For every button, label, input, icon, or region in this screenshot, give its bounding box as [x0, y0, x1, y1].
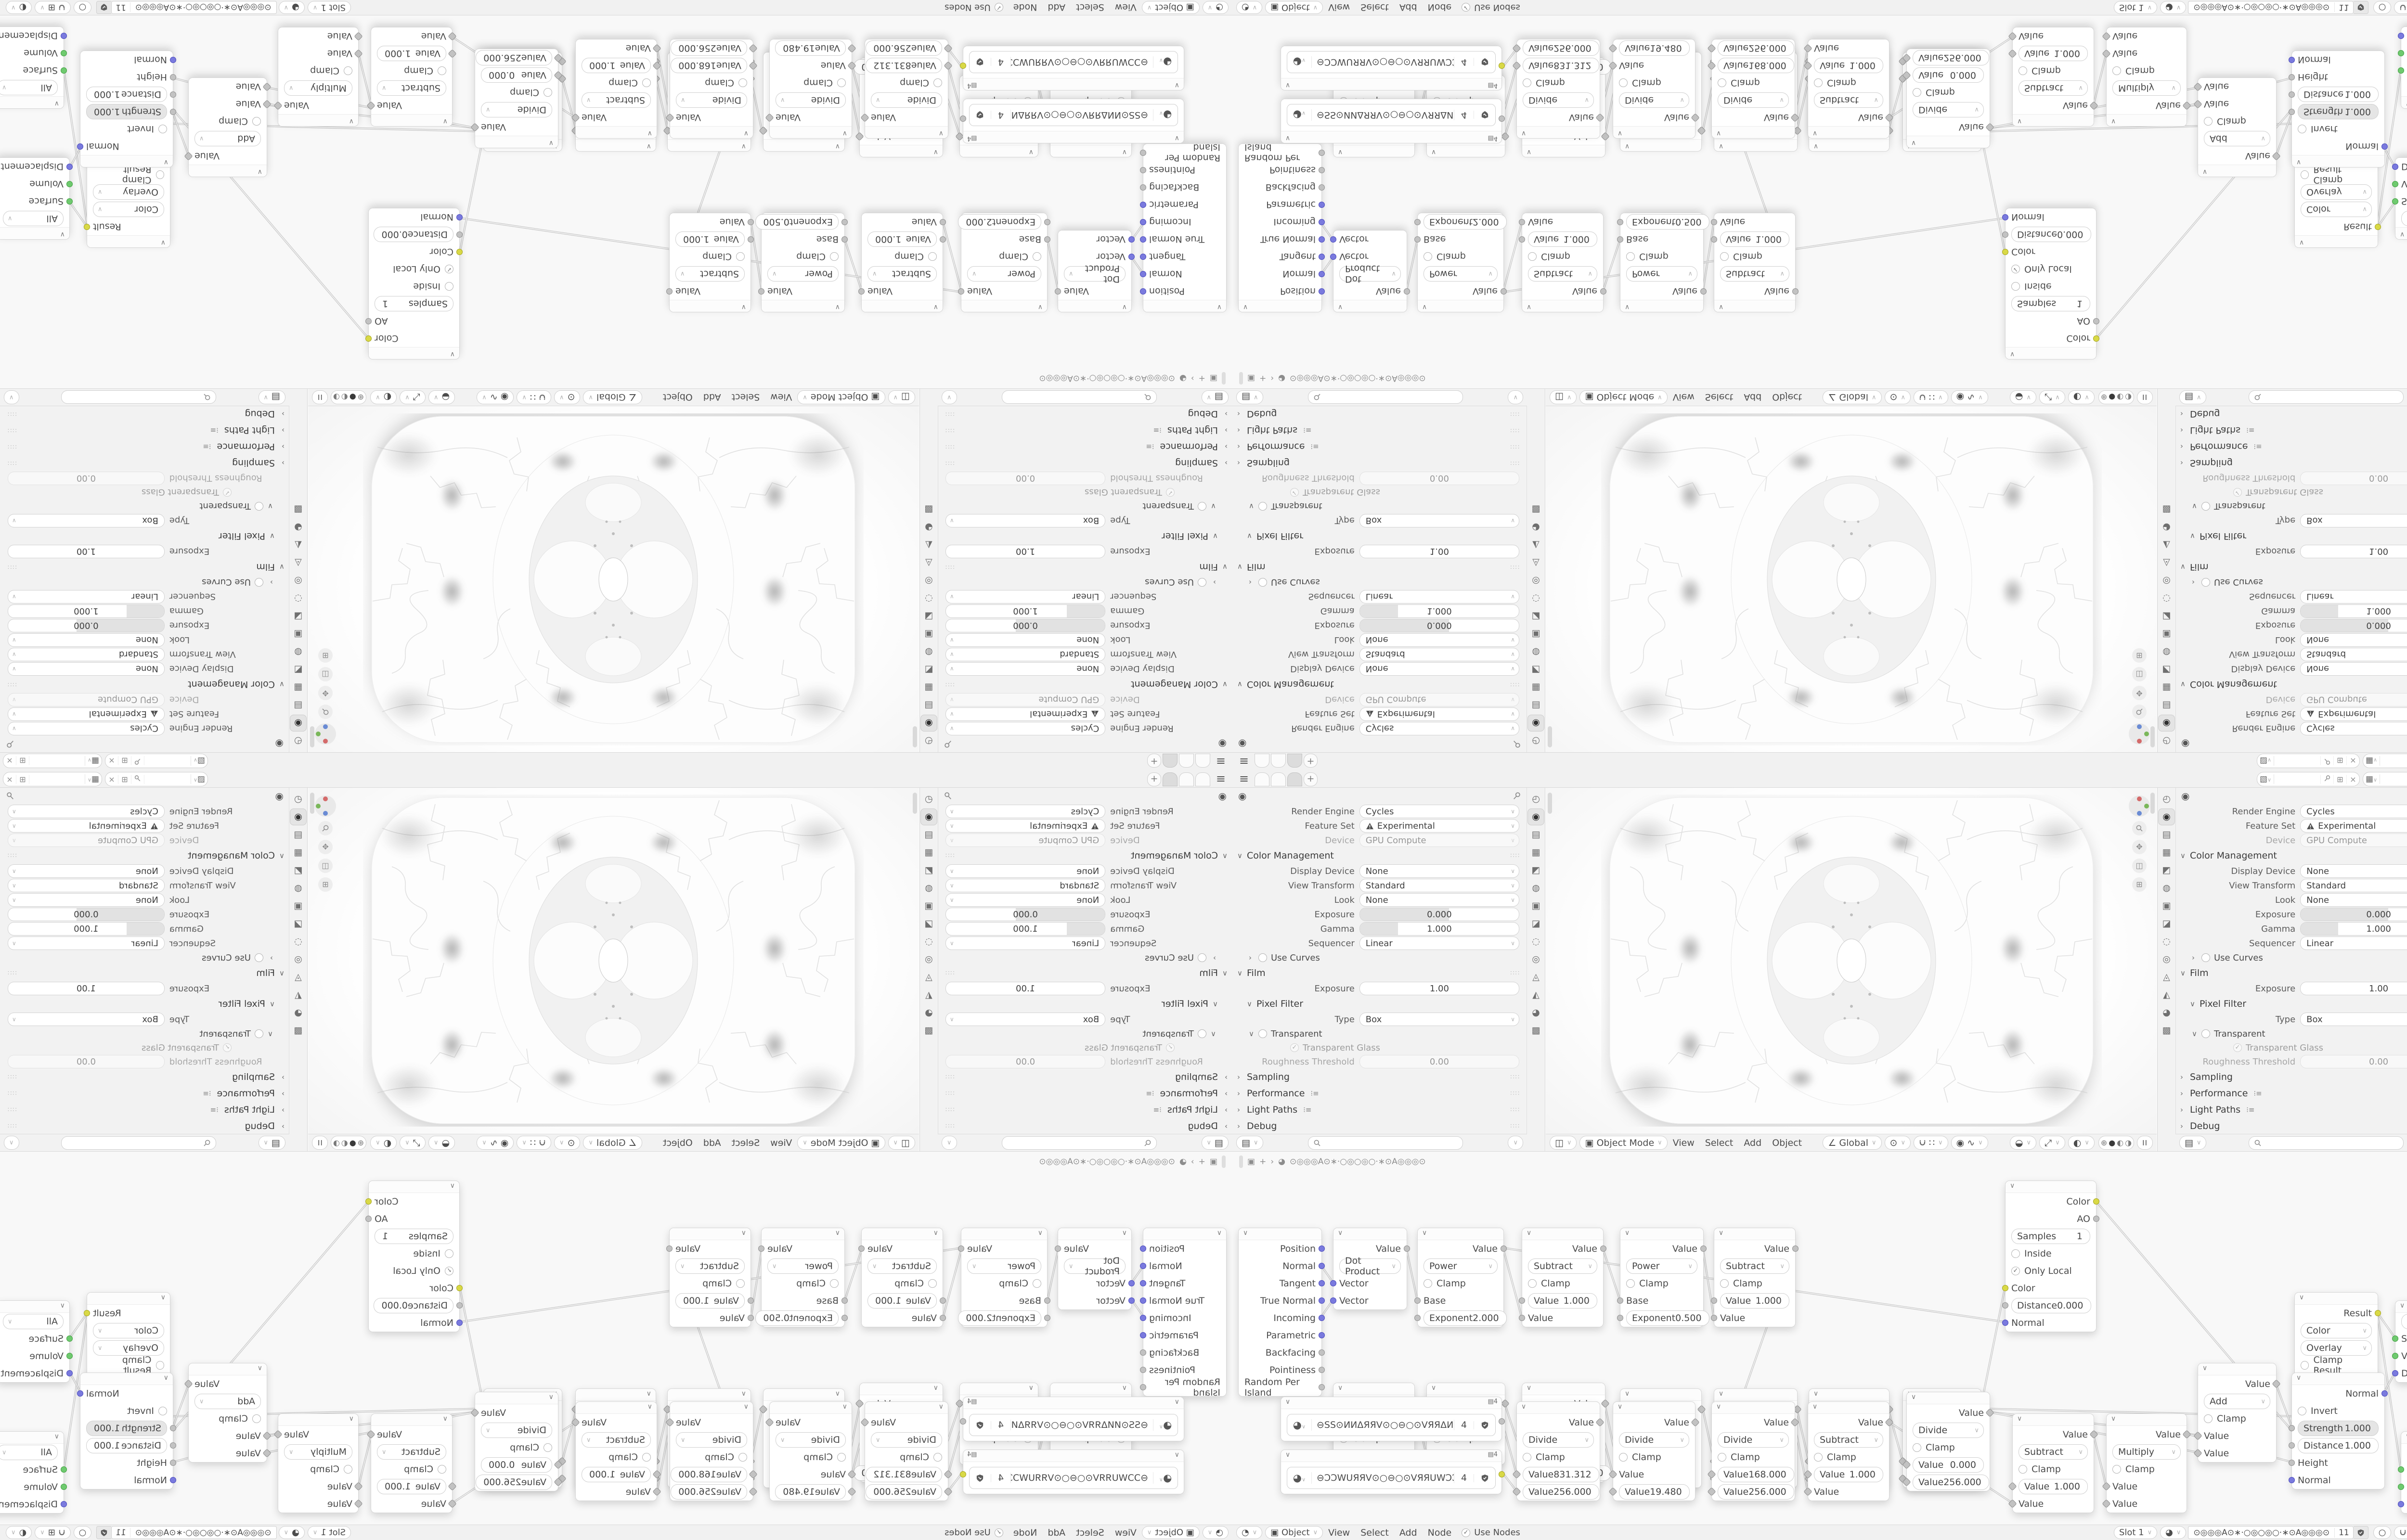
scene-name-field[interactable] [144, 772, 191, 786]
toggle-use-curves[interactable]: ›Use Curves [0, 950, 289, 965]
pause-button[interactable]: II [312, 390, 328, 404]
properties-tab-output-icon[interactable]: ▤ [920, 826, 937, 843]
input-socket[interactable] [61, 33, 67, 39]
node-material-output[interactable]: ∨All∨SurfaceVolumeDisplacement [0, 26, 64, 109]
output-socket[interactable] [1140, 1245, 1146, 1252]
properties-tab-texture-icon[interactable]: ▩ [1527, 501, 1544, 518]
node-math[interactable]: ∨ValuePower∨ClampBaseExponent0.500 [1620, 1228, 1704, 1327]
material-users-count[interactable]: 11 [112, 3, 130, 13]
group-users-count[interactable]: 4 [991, 110, 1011, 120]
output-socket[interactable] [1319, 1349, 1325, 1356]
field-device[interactable]: GPU Compute∨ [1359, 693, 1519, 706]
collapse-icon[interactable]: ∨ [835, 1229, 840, 1237]
output-socket[interactable] [365, 318, 372, 324]
input-socket[interactable] [2392, 1353, 2398, 1359]
properties-options-button[interactable]: ∨ [1508, 1136, 1523, 1150]
field-feature-set[interactable]: Experimental∨ [1359, 819, 1519, 833]
checkbox-transparent-glass[interactable]: ✓Transparent Glass [2175, 1041, 2407, 1054]
node-math[interactable]: ∨ValueAdd∨ClampValueValue [2198, 77, 2277, 177]
output-socket[interactable] [1319, 254, 1325, 260]
collapse-icon[interactable]: ∨ [1719, 303, 1723, 311]
properties-tab-physics-icon[interactable]: ◎ [2158, 951, 2175, 968]
checkbox-inside[interactable]: Inside [2006, 278, 2096, 295]
scene-name-field[interactable] [144, 754, 191, 768]
node-node-group[interactable]: ∨▤4◕∨⊖ƆƆWUЯЯV⊙○⊖○⊙VЯЯUWƆƆ⊖4 [963, 46, 1184, 90]
field-view-transform[interactable]: Standard∨ [2300, 648, 2407, 661]
input-socket[interactable] [2392, 1335, 2398, 1342]
checkbox-invert[interactable]: Invert [80, 120, 173, 138]
properties-tab-object-data-icon[interactable]: ◭ [2158, 537, 2175, 553]
input-socket[interactable] [1617, 236, 1623, 243]
node-math[interactable]: ∨ValueSubtract∨ClampValue1.000Value [1714, 1228, 1796, 1327]
input-socket[interactable] [2289, 57, 2295, 63]
panel-section-pixel-filter[interactable]: ∨Pixel Filter [0, 996, 289, 1012]
menu-object[interactable]: Object [1772, 1138, 1802, 1148]
collapse-icon[interactable]: ∨ [1813, 142, 1818, 150]
properties-search-input[interactable] [2249, 1136, 2404, 1150]
field-sequencer[interactable]: Linear∨ [1359, 937, 1519, 950]
value-field-value[interactable]: Value1.000 [576, 57, 657, 74]
field-look[interactable]: None∨ [945, 893, 1105, 907]
collapse-icon[interactable]: ∨ [647, 142, 651, 150]
operation-dropdown[interactable]: Add∨ [189, 1393, 267, 1410]
menu-view[interactable]: View [1115, 1527, 1137, 1538]
properties-tab-modifiers-icon[interactable]: ◪ [2158, 608, 2175, 625]
field-type[interactable]: Box∨ [945, 1013, 1105, 1026]
input-socket[interactable] [61, 67, 67, 74]
scrollbar[interactable] [1222, 372, 1226, 385]
properties-tab-material-icon[interactable]: ◕ [1527, 519, 1544, 536]
node-ambient-occlusion[interactable]: ∨ColorAOSamples1Inside✓Only LocalColorDi… [2005, 1181, 2096, 1332]
value-field-value[interactable]: Value256.000 [475, 1474, 558, 1491]
properties-tab-particles-icon[interactable]: ◌ [2158, 590, 2175, 607]
properties-tab-view-layer-icon[interactable]: ▦ [920, 844, 937, 861]
fractal-object[interactable] [1601, 413, 2102, 745]
properties-tab-material-icon[interactable]: ◕ [2158, 519, 2175, 536]
input-socket[interactable] [61, 50, 67, 56]
group-name-field[interactable]: ⊖SS⊙ИИΔЯЯV⊙○⊖○⊙VЯЯΔИИ⊙SS⊖ [1011, 1420, 1153, 1430]
drag-dots-icon[interactable]: ∷∷ [1510, 427, 1520, 434]
panel-section-debug[interactable]: ›Debug∷∷ [2175, 1118, 2407, 1134]
output-socket[interactable] [1319, 184, 1325, 191]
checkbox-clamp-result[interactable]: Clamp Result [87, 1357, 170, 1374]
input-socket[interactable] [456, 1285, 463, 1291]
input-socket[interactable] [170, 1460, 176, 1466]
value-field-value[interactable]: Value19.480 [1613, 39, 1695, 57]
input-socket[interactable] [1617, 219, 1623, 225]
value-field-exponent[interactable]: Exponent2.000 [961, 213, 1047, 231]
properties-tab-modifiers-icon[interactable]: ◪ [290, 608, 307, 625]
node-math[interactable]: ∨ValueDivide∨ClampValueValue19.480 [769, 1401, 852, 1501]
output-socket[interactable] [758, 1245, 764, 1252]
field-view-transform[interactable]: Standard∨ [945, 879, 1105, 892]
collapse-icon[interactable]: ∨ [1719, 142, 1723, 150]
shading-material-icon[interactable]: ◐ [2117, 1138, 2123, 1147]
node-geometry[interactable]: ∨PositionNormalTangentTrue NormalIncomin… [1143, 143, 1227, 312]
collapse-icon[interactable]: ∨ [1812, 1403, 1817, 1411]
collapse-icon[interactable]: ∨ [1527, 148, 1531, 156]
mode-dropdown[interactable]: ▣ Object Mode∨ [1579, 390, 1667, 404]
group-users-count[interactable]: 4 [1454, 57, 1474, 67]
output-socket[interactable] [1140, 202, 1146, 208]
output-socket[interactable] [1319, 202, 1325, 208]
operation-dropdown[interactable]: All∨ [2395, 1313, 2407, 1330]
menu-select[interactable]: Select [732, 1138, 760, 1148]
panel-section-debug[interactable]: ›Debug∷∷ [0, 1118, 289, 1134]
viewport-gizmos[interactable]: ✥ ◫ ⊞ [315, 648, 336, 744]
operation-dropdown[interactable]: Subtract∨ [1714, 265, 1795, 282]
scrollbar[interactable] [2150, 793, 2155, 814]
properties-tab-view-layer-icon[interactable]: ▦ [1527, 679, 1544, 696]
snapping-toggle[interactable]: ∷∨ [517, 1136, 551, 1150]
field-sequencer[interactable]: Linear∨ [8, 590, 165, 603]
operation-dropdown[interactable]: All∨ [0, 1313, 69, 1330]
menu-add[interactable]: Add [1048, 2, 1065, 13]
menu-add[interactable]: Add [1048, 1527, 1065, 1538]
collapse-icon[interactable]: ∨ [2400, 231, 2405, 238]
field-roughness-threshold[interactable]: 0.00 [1359, 1055, 1519, 1068]
field-roughness-threshold[interactable]: 0.00 [8, 1055, 165, 1068]
pivot-point-dropdown[interactable]: ⊙∨ [1885, 1136, 1911, 1150]
checkbox-transparent-glass[interactable]: ✓Transparent Glass [0, 1041, 289, 1054]
value-field-value[interactable]: Value1.000 [371, 1478, 452, 1495]
properties-tab-object-data-icon[interactable]: ◭ [920, 987, 937, 1003]
collapse-icon[interactable]: ∨ [647, 129, 652, 137]
axis-gizmo[interactable] [315, 796, 336, 817]
material-name-field[interactable]: ⊙◎◎◎A⊙∗·○◎○◎○·∗⊙A◎◎◎⊙ [2188, 3, 2334, 13]
checkbox-clamp[interactable]: Clamp [1907, 84, 1990, 101]
pin-icon[interactable] [1513, 792, 1521, 800]
panel-section-color-management[interactable]: ∨Color Management∷∷ [0, 676, 289, 693]
collapse-icon[interactable]: ∨ [741, 303, 746, 311]
material-datablock[interactable]: ⊙◎◎◎A⊙∗·○◎○◎○·∗⊙A◎◎◎⊙ 11 [111, 1526, 276, 1539]
output-socket[interactable] [1140, 1280, 1146, 1286]
menu-add[interactable]: Add [1744, 392, 1761, 403]
input-socket[interactable] [2002, 1320, 2008, 1326]
properties-tab-render-icon[interactable]: ◉ [1527, 808, 1544, 825]
panel-section-light-paths[interactable]: ›Light Paths⁝≡∷∷ [2175, 1102, 2407, 1118]
field-feature-set[interactable]: Experimental∨ [1359, 707, 1519, 721]
collapse-icon[interactable]: ∨ [1812, 129, 1817, 137]
collapse-icon[interactable]: ∨ [842, 1403, 847, 1411]
properties-tab-view-layer-icon[interactable]: ▦ [920, 679, 937, 696]
scrollbar[interactable] [913, 793, 917, 814]
operation-dropdown[interactable]: Subtract∨ [576, 91, 657, 109]
properties-tab-render-icon[interactable]: ◉ [290, 715, 307, 731]
ortho-toggle-gizmo-icon[interactable]: ⊞ [2132, 877, 2147, 892]
group-name-field[interactable]: ⊖ƆƆWUЯЯV⊙○⊖○⊙VЯЯUWƆƆ⊖ [1312, 1473, 1454, 1483]
properties-tab-render-icon[interactable]: ◉ [920, 808, 937, 825]
value-field-value[interactable]: Value1.000 [1522, 231, 1603, 248]
output-socket[interactable] [2093, 1198, 2099, 1205]
editor-type-button[interactable]: ▤∨ [1202, 1136, 1229, 1150]
group-users-count[interactable]: 4 [991, 1473, 1011, 1483]
properties-tab-constraints-icon[interactable]: ◬ [2158, 969, 2175, 986]
value-field-value[interactable]: Value1.000 [670, 1292, 751, 1309]
group-name-field[interactable]: ⊖SS⊙ИИΔЯЯV⊙○⊖○⊙VЯЯΔИИ⊙SS⊖ [1011, 110, 1153, 120]
field-display-device[interactable]: None∨ [8, 864, 165, 878]
field-exposure[interactable]: 1.00 [1359, 545, 1519, 558]
zoom-gizmo-icon[interactable] [318, 821, 333, 835]
toggle-transparent[interactable]: ∨Transparent [2175, 499, 2407, 513]
pin-icon[interactable] [6, 740, 14, 748]
panel-menu-icon[interactable]: ⁝≡ [1146, 1089, 1154, 1098]
scene-selector[interactable]: ▧∨ ⊞ × [2257, 772, 2360, 786]
checkbox-clamp[interactable]: Clamp [475, 84, 558, 101]
output-socket[interactable] [958, 288, 964, 295]
panel-section-light-paths[interactable]: ›Light Paths⁝≡∷∷ [938, 422, 1232, 438]
node-math[interactable]: ∨ValueDivide∨ClampValueValue19.480 [769, 39, 852, 139]
proportional-editing-toggle[interactable]: ◉ ∿∨ [1951, 1136, 1988, 1150]
drag-dots-icon[interactable]: ∷∷ [1510, 681, 1520, 688]
field-feature-set[interactable]: Experimental∨ [2300, 819, 2407, 833]
collapse-icon[interactable]: ∨ [1285, 81, 1290, 89]
node-material-output[interactable]: ∨All∨SurfaceVolumeDisplacement [0, 1431, 64, 1514]
app-menu-icon[interactable]: ≡ [1214, 772, 1228, 785]
field-type[interactable]: Box∨ [945, 514, 1105, 527]
properties-tab-scene-icon[interactable]: ◩ [2158, 661, 2175, 678]
input-socket[interactable] [748, 219, 754, 225]
value-field-value[interactable]: Value1.000 [2013, 45, 2094, 62]
drag-dots-icon[interactable]: ∷∷ [7, 1090, 17, 1097]
shading-solid-icon[interactable]: ● [2109, 1138, 2115, 1147]
output-socket[interactable] [1404, 1245, 1410, 1252]
operation-dropdown[interactable]: Multiply∨ [2107, 1443, 2187, 1461]
input-socket[interactable] [1617, 1297, 1623, 1304]
input-socket[interactable] [1044, 236, 1050, 243]
properties-tab-particles-icon[interactable]: ◌ [920, 933, 937, 950]
view-layer-name-field[interactable] [2380, 754, 2407, 768]
collapse-icon[interactable]: ∨ [835, 142, 840, 150]
fake-user-shield-icon[interactable] [1474, 58, 1495, 66]
input-socket[interactable] [170, 74, 176, 80]
panel-section-debug[interactable]: ›Debug∷∷ [1232, 1118, 1527, 1134]
value-field-value[interactable]: Value256.000 [865, 1483, 948, 1501]
properties-tab-tool-icon[interactable]: ◴ [2158, 732, 2175, 749]
drag-dots-icon[interactable]: ∷∷ [1510, 1090, 1520, 1097]
node-node-group[interactable]: ∨▤4◕∨⊖SS⊙ИИΔЯЯV⊙○⊖○⊙VЯЯΔИИ⊙SS⊖4 [1281, 1397, 1502, 1441]
properties-tab-material-icon[interactable]: ◕ [290, 519, 307, 536]
output-socket[interactable] [1319, 1263, 1325, 1269]
checkbox-clamp[interactable]: Clamp [1517, 1449, 1600, 1466]
field-sequencer[interactable]: Linear∨ [945, 937, 1105, 950]
checkbox-clamp[interactable]: Clamp [1712, 74, 1795, 91]
input-socket[interactable] [2002, 214, 2008, 220]
checkbox-clamp[interactable]: Clamp [1418, 1275, 1503, 1292]
operation-dropdown[interactable]: Divide∨ [1712, 91, 1795, 109]
workspace-tab-1[interactable] [1195, 754, 1210, 768]
node-math[interactable]: ∨ValueSubtract∨ClampValue1.000Value [669, 1228, 751, 1327]
field-look[interactable]: None∨ [1359, 633, 1519, 647]
properties-tab-modifiers-icon[interactable]: ◪ [2158, 915, 2175, 932]
panel-section-debug[interactable]: ›Debug∷∷ [2175, 406, 2407, 422]
value-field-value[interactable]: Value1.000 [1808, 1466, 1889, 1483]
camera-view-gizmo-icon[interactable]: ◫ [2132, 667, 2147, 681]
overlays-toggle[interactable]: ◐∨ [370, 390, 397, 404]
checkbox-transparent-glass[interactable]: ✓Transparent Glass [2175, 486, 2407, 499]
workspace-tab-1[interactable] [1195, 772, 1210, 786]
input-socket[interactable] [66, 181, 73, 187]
operation-dropdown[interactable]: Subtract∨ [1714, 1258, 1795, 1275]
field-sequencer[interactable]: Linear∨ [2300, 590, 2407, 603]
node-math[interactable]: ∨ValueSubtract∨ClampValue1.000Value [575, 39, 657, 139]
remove-view-layer-button[interactable]: × [3, 757, 16, 766]
menu-add[interactable]: Add [703, 1138, 721, 1148]
drag-dots-icon[interactable]: ∷∷ [1510, 970, 1520, 977]
pin-icon[interactable] [1513, 740, 1521, 748]
drag-dots-icon[interactable]: ∷∷ [1510, 443, 1520, 450]
collapse-icon[interactable]: ∨ [161, 239, 166, 246]
drag-dots-icon[interactable]: ∷∷ [7, 443, 17, 450]
material-datablock[interactable]: ⊙◎◎◎A⊙∗·○◎○◎○·∗⊙A◎◎◎⊙ 11 [111, 1, 276, 14]
value-field-samples[interactable]: Samples1 [2006, 295, 2096, 312]
pause-button[interactable]: II [2137, 390, 2153, 404]
operation-dropdown[interactable]: Subtract∨ [2013, 1443, 2094, 1461]
pivot-point-dropdown[interactable]: ⊙∨ [1885, 390, 1911, 404]
toggle-use-curves[interactable]: ›Use Curves [938, 575, 1232, 590]
properties-tab-object-data-icon[interactable]: ◭ [1527, 537, 1544, 553]
checkbox-clamp[interactable]: Clamp [1522, 1275, 1603, 1292]
properties-tab-object-data-icon[interactable]: ◭ [290, 987, 307, 1003]
input-socket[interactable] [1711, 1297, 1717, 1304]
collapse-icon[interactable]: ∨ [1527, 1229, 1531, 1237]
node-math[interactable]: ∨ValueSubtract∨ClampValue1.000Value [2012, 27, 2094, 127]
properties-options-button[interactable]: ∨ [4, 390, 19, 404]
unlink-scene-button[interactable]: × [2346, 775, 2359, 784]
field-device[interactable]: GPU Compute∨ [2300, 834, 2407, 847]
toggle-transparent[interactable]: ∨Transparent [1232, 499, 1527, 513]
shading-wireframe-icon[interactable]: ⊕ [358, 1138, 364, 1147]
shading-solid-icon[interactable]: ● [349, 1138, 356, 1147]
field-type[interactable]: Box∨ [2300, 1013, 2407, 1026]
value-field-value[interactable]: Value1.000 [670, 231, 751, 248]
collapse-icon[interactable]: ∨ [1422, 303, 1427, 311]
drag-dots-icon[interactable]: ∷∷ [7, 411, 17, 418]
properties-tab-scene-icon[interactable]: ◩ [920, 862, 937, 879]
transform-orientation-dropdown[interactable]: ∠ Global∨ [583, 390, 642, 404]
collapse-icon[interactable]: ∨ [349, 117, 354, 125]
value-field-value[interactable]: Value256.000 [1907, 1474, 1990, 1491]
app-menu-icon[interactable]: ≡ [1237, 772, 1251, 785]
menu-node[interactable]: Node [1013, 1527, 1037, 1538]
input-socket[interactable] [2289, 1460, 2295, 1466]
properties-tab-material-icon[interactable]: ◕ [2158, 1004, 2175, 1021]
checkbox-clamp[interactable]: Clamp [1522, 248, 1603, 265]
node-material-output[interactable]: ∨All∨SurfaceVolumeDisplacement [2401, 1431, 2407, 1514]
output-socket[interactable] [1792, 288, 1799, 295]
group-name-field[interactable]: ⊖ƆƆWUЯЯV⊙○⊖○⊙VЯЯUWƆƆ⊖ [1312, 57, 1454, 67]
checkbox-transparent-glass[interactable]: ✓Transparent Glass [1232, 486, 1527, 499]
output-socket[interactable] [1319, 288, 1325, 295]
node-math[interactable]: ∨ValueAdd∨ClampValueValue [2198, 1363, 2277, 1463]
transform-orientation-dropdown[interactable]: ∠ Global∨ [1823, 1136, 1881, 1150]
collapse-icon[interactable]: ∨ [1175, 81, 1179, 89]
field-view-transform[interactable]: Standard∨ [8, 879, 165, 892]
viewport-gizmos[interactable]: ✥ ◫ ⊞ [2129, 648, 2150, 744]
shader-node-editor[interactable]: ▣ + › ◕ ⊙◎◎◎A⊙∗·○◎○◎○·∗⊙A◎◎◎⊙ ∨PositionN… [1232, 15, 2407, 389]
field-device[interactable]: GPU Compute∨ [1359, 834, 1519, 847]
collapse-icon[interactable]: ∨ [450, 350, 455, 358]
collapse-icon[interactable]: ∨ [2010, 1182, 2015, 1190]
output-socket[interactable] [77, 1390, 83, 1397]
toggle-use-curves[interactable]: ›Use Curves [938, 950, 1232, 965]
collapse-icon[interactable]: ∨ [1285, 1451, 1290, 1459]
fake-user-shield-icon[interactable] [1474, 1474, 1495, 1482]
new-scene-button[interactable]: ⊞ [2333, 775, 2346, 784]
node-math[interactable]: ∨ValueSubtract∨ClampValue1.000Value [1714, 213, 1796, 312]
field-roughness-threshold[interactable]: 0.00 [945, 472, 1105, 485]
checkbox-clamp[interactable]: Clamp [1808, 1449, 1889, 1466]
toggle-transparent[interactable]: ∨Transparent [0, 1027, 289, 1041]
checkbox-transparent-glass[interactable]: ✓Transparent Glass [938, 1041, 1232, 1054]
workspace-tab-3[interactable] [1287, 754, 1302, 768]
properties-search-input[interactable] [1308, 1136, 1463, 1150]
field-type[interactable]: Box∨ [8, 514, 165, 527]
checkbox-clamp[interactable]: Clamp [1517, 74, 1600, 91]
checkbox-clamp[interactable]: Clamp [762, 1275, 844, 1292]
collapse-icon[interactable]: ∨ [161, 1294, 166, 1301]
properties-tab-material-icon[interactable]: ◕ [920, 519, 937, 536]
use-nodes-checkbox[interactable]: ✓ [995, 1528, 1003, 1537]
panel-menu-icon[interactable]: ⁝≡ [1310, 1089, 1319, 1098]
panel-section-performance[interactable]: ›Performance⁝≡∷∷ [0, 438, 289, 455]
checkbox-clamp[interactable]: Clamp [770, 74, 852, 91]
checkbox-clamp[interactable]: Clamp [1712, 1449, 1795, 1466]
pin-icon[interactable] [944, 792, 952, 800]
pin-icon[interactable] [131, 775, 144, 784]
camera-view-gizmo-icon[interactable]: ◫ [318, 667, 333, 681]
node-math[interactable]: ∨ValuePower∨ClampBaseExponent0.500 [761, 1228, 845, 1327]
input-socket[interactable] [66, 164, 73, 170]
collapse-icon[interactable]: ∨ [1431, 1384, 1436, 1392]
move-view-gizmo-icon[interactable]: ✥ [2132, 840, 2147, 854]
panel-menu-icon[interactable]: ⁝≡ [1310, 442, 1319, 451]
node-group-datablock[interactable]: ◕∨⊖ƆƆWUЯЯV⊙○⊖○⊙VЯЯUWƆƆ⊖4 [969, 51, 1178, 73]
properties-tab-world-icon[interactable]: ◍ [1527, 643, 1544, 660]
use-nodes-checkbox[interactable]: ✓ [1462, 3, 1470, 12]
material-datablock[interactable]: ⊙◎◎◎A⊙∗·○◎○◎○·∗⊙A◎◎◎⊙ 11 [2188, 1, 2353, 14]
collapse-icon[interactable]: ∨ [60, 1302, 65, 1309]
field-type[interactable]: Box∨ [2300, 514, 2407, 527]
node-math[interactable]: ∨ValueSubtract∨ClampValue1.000Value [861, 1228, 943, 1327]
workspace-tab-2[interactable] [1271, 754, 1286, 768]
collapse-icon[interactable]: ∨ [258, 168, 262, 176]
collapse-icon[interactable]: ∨ [2017, 1415, 2022, 1423]
input-socket[interactable] [1519, 1297, 1525, 1304]
menu-select[interactable]: Select [1705, 1138, 1734, 1148]
properties-tab-world-icon[interactable]: ◍ [2158, 643, 2175, 660]
pause-button[interactable]: II [312, 1136, 328, 1150]
operation-dropdown[interactable]: Subtract∨ [670, 1258, 751, 1275]
drag-dots-icon[interactable]: ∷∷ [945, 460, 955, 467]
editor-type-button[interactable]: ◔∨ [1236, 1526, 1262, 1539]
collapse-icon[interactable]: ∨ [164, 1374, 168, 1382]
panel-section-performance[interactable]: ›Performance⁝≡∷∷ [938, 1085, 1232, 1102]
field-display-device[interactable]: None∨ [945, 864, 1105, 878]
output-socket[interactable] [1140, 271, 1146, 277]
properties-tab-constraints-icon[interactable]: ◬ [290, 969, 307, 986]
checkbox-clamp[interactable]: Clamp [189, 113, 267, 130]
node-math[interactable]: ∨ValueMultiply∨ClampValueValue [2106, 1413, 2187, 1513]
collapse-icon[interactable]: ∨ [1338, 303, 1343, 311]
field-view-transform[interactable]: Standard∨ [1359, 879, 1519, 892]
input-socket[interactable] [748, 1297, 754, 1304]
node-math[interactable]: ∨ValueDivide∨ClampValue168.000Value256.0… [1711, 1401, 1795, 1501]
app-menu-icon[interactable]: ≡ [1237, 755, 1251, 768]
collapse-icon[interactable]: ∨ [2299, 1294, 2304, 1301]
panel-section-sampling[interactable]: ›Sampling∷∷ [2175, 455, 2407, 471]
properties-tab-tool-icon[interactable]: ◴ [290, 791, 307, 808]
